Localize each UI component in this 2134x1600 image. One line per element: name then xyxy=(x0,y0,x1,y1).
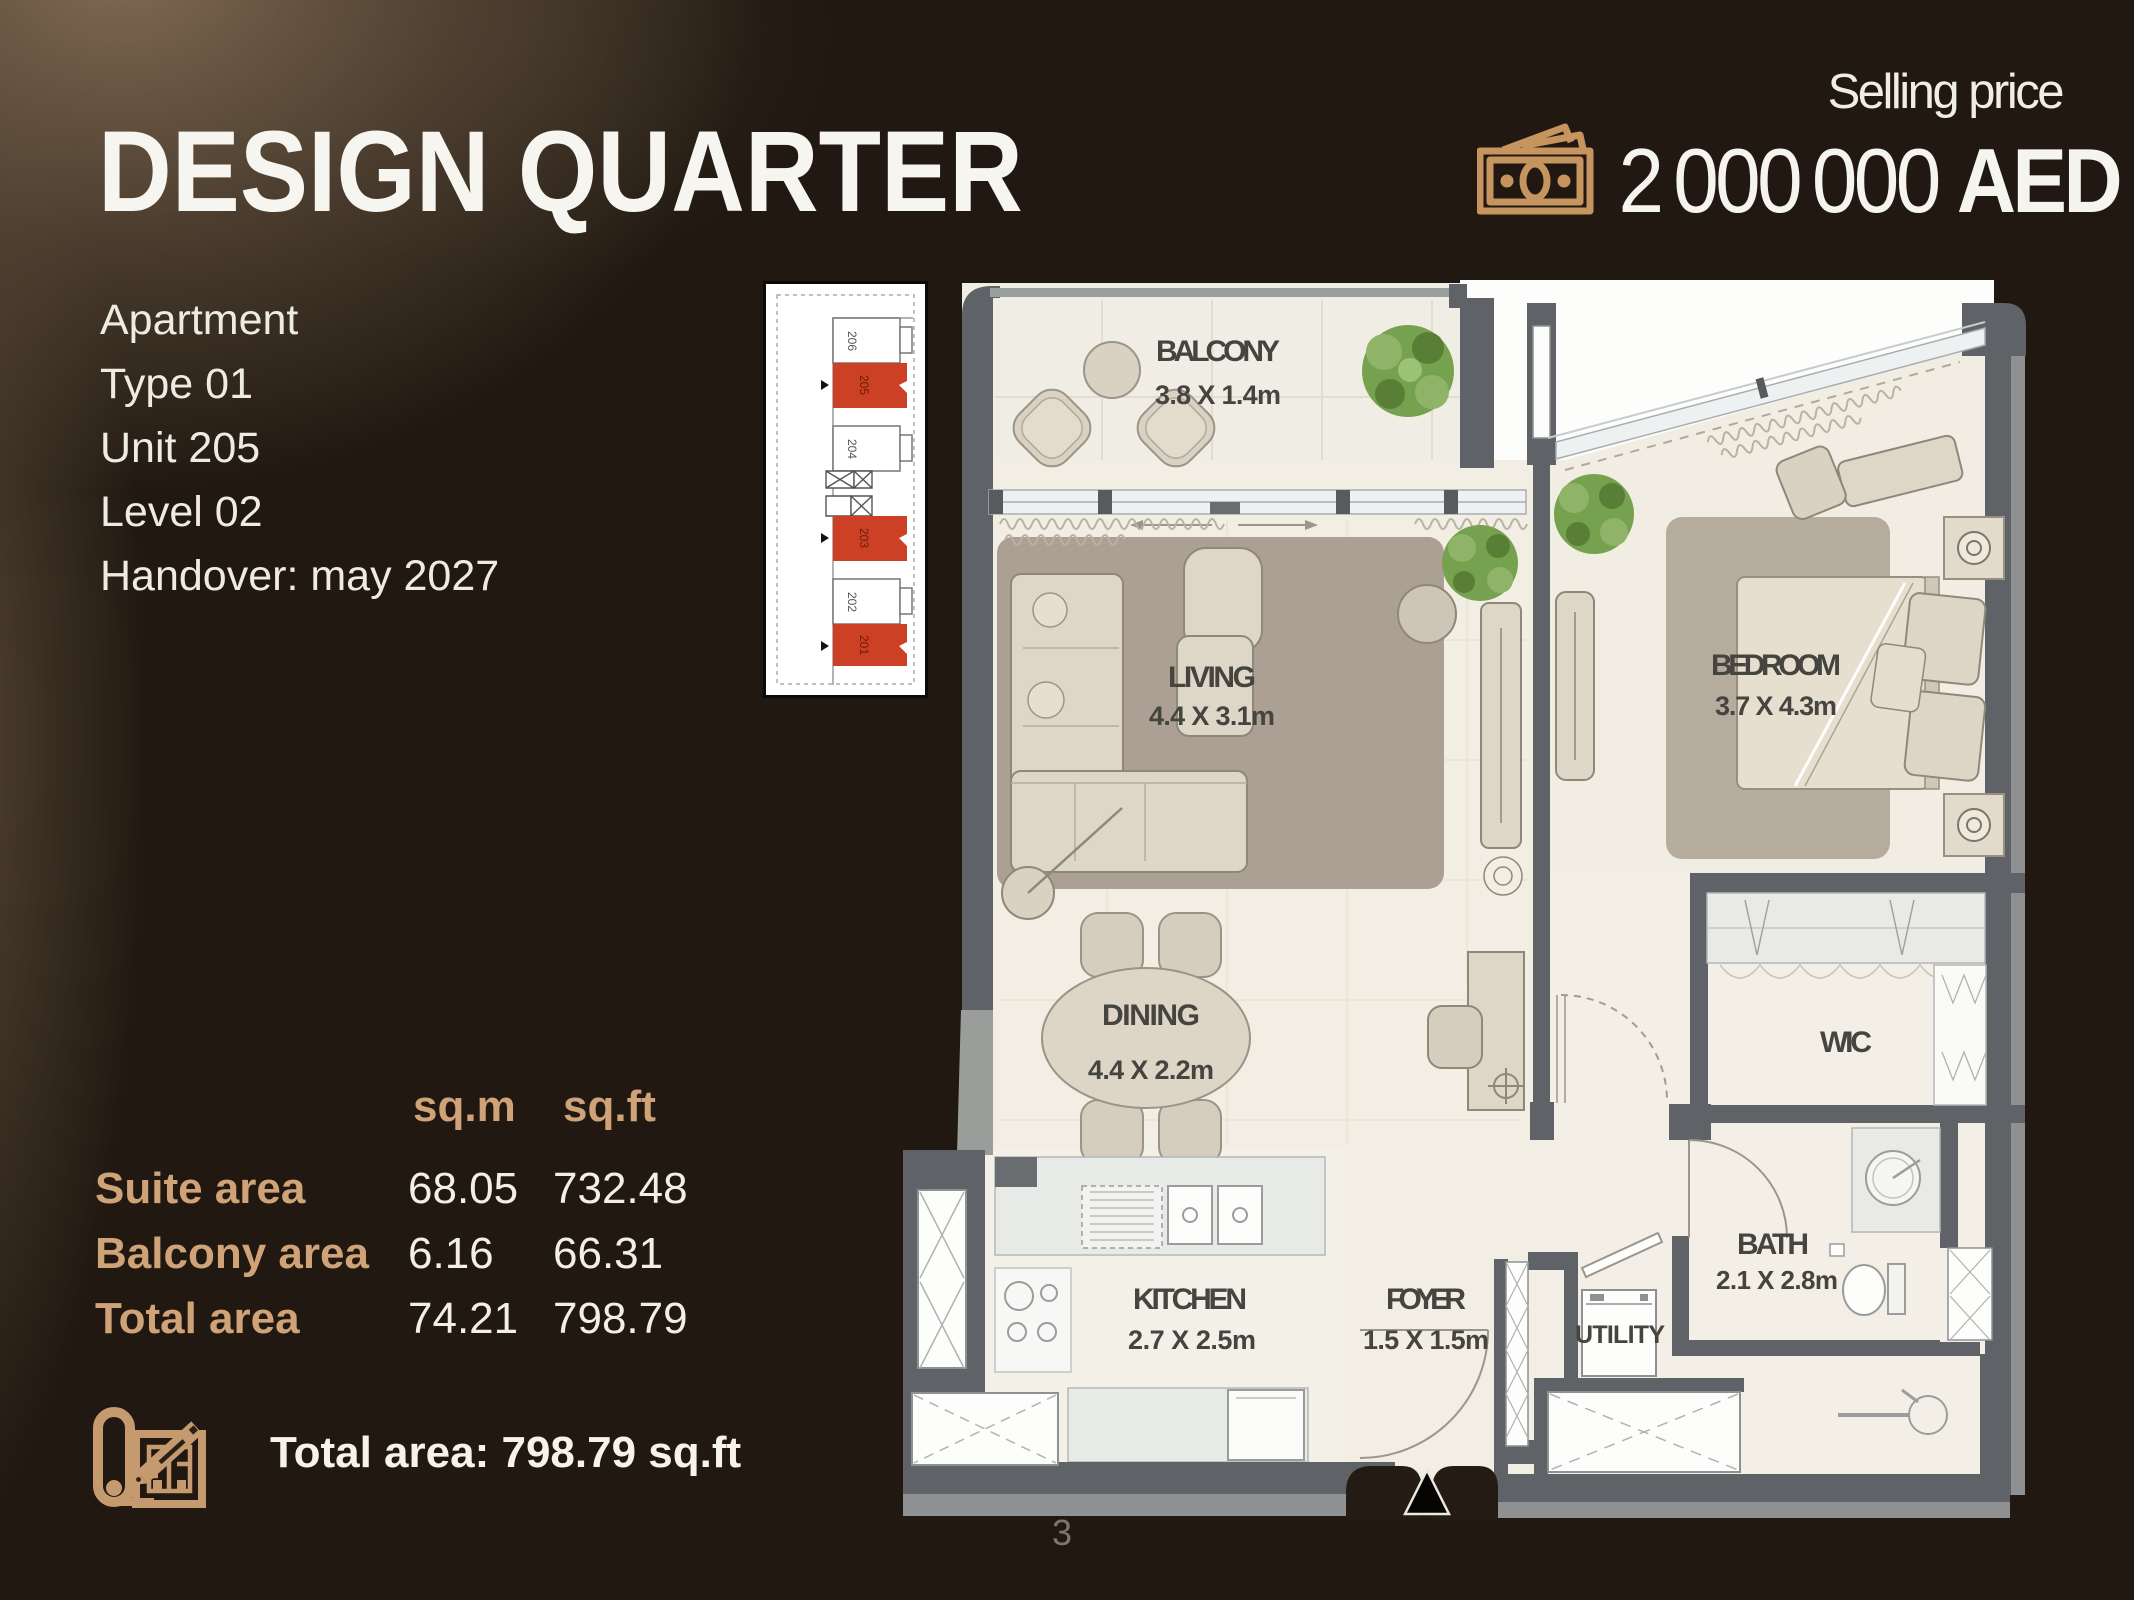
svg-text:DINING: DINING xyxy=(1102,999,1200,1032)
svg-text:FOYER: FOYER xyxy=(1386,1283,1466,1316)
svg-text:4.4 X 3.1m: 4.4 X 3.1m xyxy=(1149,701,1275,731)
svg-text:UTILITY: UTILITY xyxy=(1575,1321,1665,1349)
svg-text:2.1 X 2.8m: 2.1 X 2.8m xyxy=(1716,1265,1838,1295)
svg-text:BATH: BATH xyxy=(1737,1228,1809,1261)
svg-text:3.8 X 1.4m: 3.8 X 1.4m xyxy=(1155,380,1281,410)
svg-text:BALCONY: BALCONY xyxy=(1156,335,1280,368)
svg-text:1.5 X 1.5m: 1.5 X 1.5m xyxy=(1363,1325,1489,1355)
svg-text:LIVING: LIVING xyxy=(1168,661,1256,694)
svg-text:2.7 X 2.5m: 2.7 X 2.5m xyxy=(1128,1325,1256,1355)
svg-text:BEDROOM: BEDROOM xyxy=(1711,649,1841,682)
svg-text:3.7 X 4.3m: 3.7 X 4.3m xyxy=(1715,691,1837,721)
svg-text:KITCHEN: KITCHEN xyxy=(1133,1283,1247,1316)
svg-text:4.4 X 2.2m: 4.4 X 2.2m xyxy=(1088,1055,1214,1085)
svg-text:WIC: WIC xyxy=(1820,1026,1872,1059)
